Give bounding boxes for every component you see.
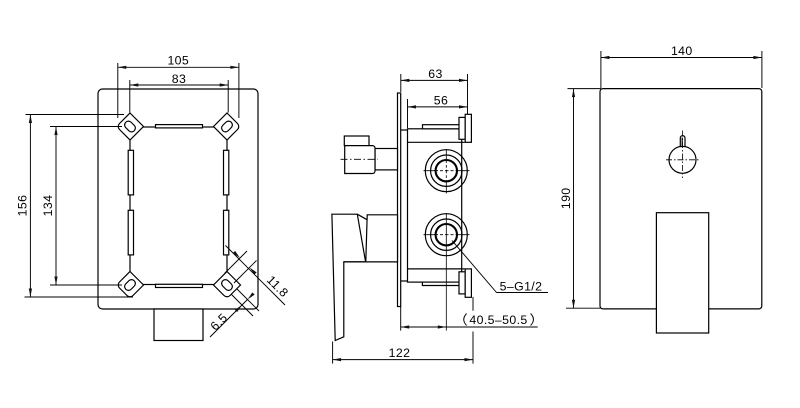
svg-text:56: 56 xyxy=(434,94,448,108)
svg-text:83: 83 xyxy=(172,72,186,86)
svg-text:40.5–50.5: 40.5–50.5 xyxy=(469,313,527,327)
svg-text:156: 156 xyxy=(15,195,29,217)
svg-text:63: 63 xyxy=(428,67,442,81)
svg-text:134: 134 xyxy=(41,195,55,217)
svg-text:140: 140 xyxy=(671,44,693,58)
svg-text:122: 122 xyxy=(389,346,411,360)
svg-text:190: 190 xyxy=(559,187,573,209)
svg-text:5–G1/2: 5–G1/2 xyxy=(500,280,543,294)
svg-text:105: 105 xyxy=(167,54,189,68)
